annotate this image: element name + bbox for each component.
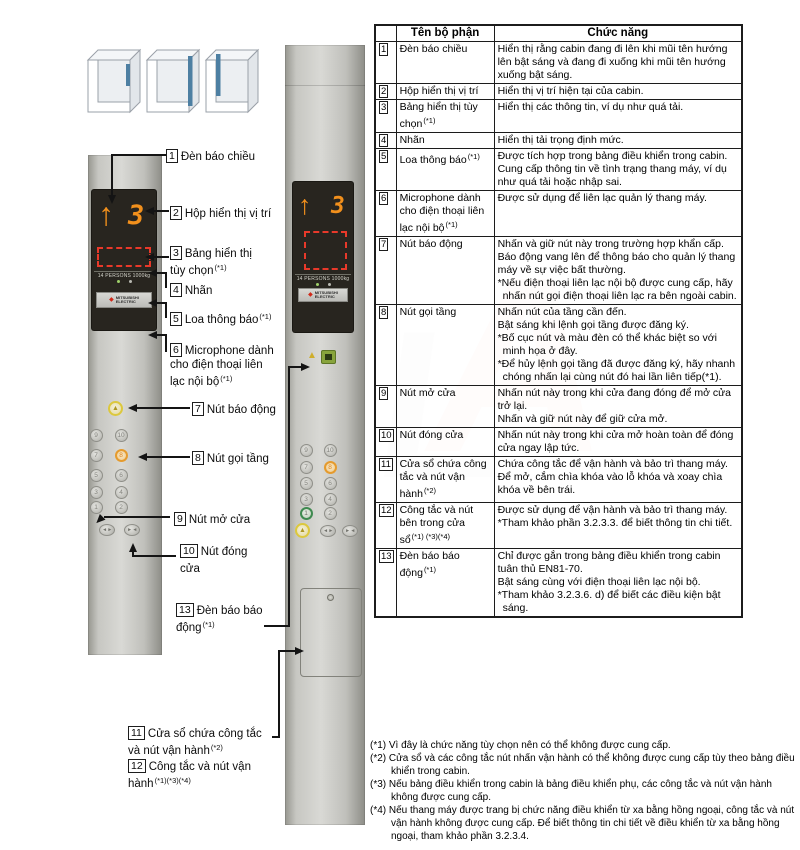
- table-row: 3Bảng hiển thị tùy chọn(*1)Hiển thị các …: [375, 100, 742, 133]
- floor-button-8: 8: [324, 461, 337, 474]
- function-paragraph: Báo động vang lên để thông báo cho quản …: [498, 251, 739, 277]
- arrowhead: [148, 331, 157, 339]
- capacity-label: 14 PERSONS 1000kg: [295, 274, 351, 286]
- callout-8: 8Nút gọi tầng: [192, 449, 302, 466]
- manual-page: A L: [0, 0, 800, 850]
- cell-number: 8: [375, 305, 396, 386]
- callout-line: [153, 210, 169, 212]
- callout-line: [111, 154, 113, 197]
- table-row: 1Đèn báo chiềuHiển thị rằng cabin đang đ…: [375, 42, 742, 84]
- cell-number: 6: [375, 191, 396, 237]
- door-open-button: ◄ ►: [99, 524, 115, 536]
- row-number: 9: [379, 387, 388, 400]
- arrowhead: [148, 269, 157, 277]
- floor-button-4: 4: [324, 493, 337, 506]
- table-row: 12Công tắc và nút bên trong cửa sổ(*1) (…: [375, 503, 742, 549]
- cell-function: Nhấn nút này trong khi cửa đang đóng để …: [494, 386, 742, 428]
- callout-10: 10Nút đóng cửa: [180, 544, 266, 576]
- floor-button-5: 5: [90, 469, 103, 482]
- cell-name: Công tắc và nút bên trong cửa sổ(*1) (*3…: [396, 503, 494, 549]
- car-operating-panel-right: ↑ 3 14 PERSONS 1000kg ◆ MITSUBISHIELECTR…: [285, 45, 365, 825]
- function-paragraph: Được sử dụng để vận hành và bảo trì than…: [498, 504, 739, 517]
- cell-number: 3: [375, 100, 396, 133]
- function-paragraph: Cung cấp thông tin về tình trạng thang m…: [498, 163, 739, 189]
- table-row: 10Nút đóng cửaNhấn nút này trong khi cửa…: [375, 428, 742, 457]
- floor-button-10: 10: [324, 444, 337, 457]
- alarm-indicator-lamp: ▲: [307, 351, 317, 361]
- footnotes: (*1) Vì đây là chức năng tùy chọn nên có…: [370, 739, 796, 843]
- table-row: 5Loa thông báo(*1)Được tích hợp trong bả…: [375, 149, 742, 191]
- header-function: Chức năng: [494, 25, 742, 42]
- function-paragraph: *Bố cục nút và màu đèn có thể khác biệt …: [498, 332, 739, 358]
- callout-line: [112, 154, 167, 156]
- function-paragraph: Nhấn và giữ nút này trong trường hợp khẩ…: [498, 238, 739, 251]
- cell-function: Nhấn nút này trong khi cửa mở hoàn toàn …: [494, 428, 742, 457]
- row-number: 12: [379, 504, 394, 517]
- function-paragraph: Nhấn nút này trong khi cửa đang đóng để …: [498, 387, 739, 413]
- callout-line: [136, 407, 190, 409]
- door-close-button: ► ◄: [124, 524, 140, 536]
- alarm-triangle-icon: ▲: [299, 527, 306, 534]
- function-paragraph: Nhấn nút này trong khi cửa mở hoàn toàn …: [498, 429, 739, 455]
- row-number: 10: [379, 429, 394, 442]
- cell-name: Nút gọi tầng: [396, 305, 494, 386]
- option-display: [304, 231, 347, 270]
- cell-name: Loa thông báo(*1): [396, 149, 494, 191]
- cell-function: Hiển thị tải trọng định mức.: [494, 133, 742, 149]
- table-row: 6Microphone dành cho điện thoại liên lạc…: [375, 191, 742, 237]
- table-row: 8Nút gọi tầngNhấn nút của tầng cần đến.B…: [375, 305, 742, 386]
- floor-button-6: 6: [324, 477, 337, 490]
- cell-function: Chỉ được gắn trong bảng điều khiển trong…: [494, 549, 742, 618]
- cell-function: Hiển thị vị trí hiện tại của cabin.: [494, 84, 742, 100]
- row-number: 11: [379, 458, 393, 471]
- function-paragraph: Được tích hợp trong bảng điều khiển tron…: [498, 150, 739, 163]
- alarm-triangle-icon: ▲: [112, 405, 119, 412]
- floor-button-7: 7: [90, 449, 103, 462]
- callout-6: 6Microphone dành cho điện thoại liên lạc…: [170, 343, 274, 389]
- cell-number: 7: [375, 237, 396, 305]
- callout-9: 9Nút mở cửa: [174, 510, 284, 527]
- cell-number: 10: [375, 428, 396, 457]
- function-paragraph: Hiển thị các thông tin, ví dụ như quá tả…: [498, 101, 739, 114]
- row-number: 1: [379, 43, 388, 56]
- cell-number: 11: [375, 457, 396, 503]
- table-row: 13Đèn báo báo động(*1)Chỉ được gắn trong…: [375, 549, 742, 618]
- intercom-indicator: [321, 350, 336, 364]
- function-paragraph: *Nếu điện thoại liên lạc nội bộ được cun…: [498, 277, 739, 303]
- floor-button-1: 1: [300, 507, 313, 520]
- footnote: (*4) Nếu thang máy được trang bị chức nă…: [370, 804, 796, 843]
- brand-logo: ◆ MITSUBISHIELECTRIC: [298, 288, 348, 302]
- floor-button-2: 2: [324, 507, 337, 520]
- function-paragraph: Để mở, cắm chìa khóa vào lỗ khóa và xoay…: [498, 471, 739, 497]
- callout-line: [165, 302, 167, 318]
- arrowhead: [128, 404, 137, 412]
- brand-diamond-icon: ◆: [308, 292, 313, 298]
- callout-7: 7Nút báo động: [192, 400, 302, 417]
- cell-number: 9: [375, 386, 396, 428]
- floor-button-4: 4: [115, 486, 128, 499]
- table-row: 7Nút báo độngNhấn và giữ nút này trong t…: [375, 237, 742, 305]
- callout-11: 11Cửa sổ chứa công tắc và nút vận hành(*…: [128, 726, 274, 758]
- callout-line: [165, 334, 167, 352]
- table-header-row: Tên bộ phận Chức năng: [375, 25, 742, 42]
- footnote: (*1) Vì đây là chức năng tùy chọn nên có…: [370, 739, 796, 752]
- cabin-illustrations: [86, 46, 262, 142]
- callout-5: 5Loa thông báo(*1): [170, 310, 290, 327]
- panel-seam: [285, 85, 365, 86]
- cell-function: Nhấn nút của tầng cần đến.Bật sáng khi l…: [494, 305, 742, 386]
- cell-function: Chứa công tắc để vận hành và bảo trì tha…: [494, 457, 742, 503]
- cell-name: Nút đóng cửa: [396, 428, 494, 457]
- row-number: 3: [379, 101, 388, 114]
- floor-button-3: 3: [300, 493, 313, 506]
- footnote: (*2) Cửa sổ và các công tắc nút nhấn vận…: [370, 752, 796, 778]
- alarm-button: ▲: [295, 523, 310, 538]
- door-close-icon: ► ◄: [345, 528, 355, 534]
- callout-3: 3Bảng hiển thị tùy chọn(*1): [170, 246, 266, 278]
- function-paragraph: Hiển thị rằng cabin đang đi lên khi mũi …: [498, 43, 739, 82]
- callout-line: [278, 650, 296, 652]
- callout-line: [288, 366, 302, 368]
- access-window: [300, 588, 362, 677]
- direction-arrow-icon: ↑: [298, 192, 312, 219]
- function-paragraph: Nhấn và giữ nút này để giữ cửa mở.: [498, 413, 739, 426]
- row-number: 4: [379, 134, 388, 147]
- function-paragraph: *Tham khảo 3.2.3.6. d) để biết các điều …: [498, 589, 739, 615]
- row-number: 7: [379, 238, 388, 251]
- arrowhead: [148, 299, 157, 307]
- brand-logo: ◆ MITSUBISHIELECTRIC: [96, 292, 152, 308]
- arrowhead: [138, 453, 147, 461]
- arrowhead: [108, 195, 116, 204]
- arrowhead: [145, 253, 154, 261]
- car-operating-panel-left: ↑ 3 14 PERSONS 1000kg ◆ MITSUBISHIELECTR…: [88, 155, 162, 655]
- keyhole: [327, 594, 334, 601]
- cell-name: Cửa sổ chứa công tắc và nút vận hành(*2): [396, 457, 494, 503]
- function-paragraph: Hiển thị tải trọng định mức.: [498, 134, 739, 147]
- cell-number: 5: [375, 149, 396, 191]
- callout-line: [146, 456, 190, 458]
- function-paragraph: Hiển thị vị trí hiện tại của cabin.: [498, 85, 739, 98]
- row-number: 13: [379, 550, 394, 563]
- arrowhead: [301, 363, 310, 371]
- row-number: 2: [379, 85, 388, 98]
- function-paragraph: Được sử dụng để liên lạc quản lý thang m…: [498, 192, 739, 205]
- cell-name: Microphone dành cho điện thoại liên lạc …: [396, 191, 494, 237]
- cell-name: Nút mở cửa: [396, 386, 494, 428]
- function-paragraph: Bật sáng cùng với điện thoại liên lạc nộ…: [498, 576, 739, 589]
- row-number: 8: [379, 306, 388, 319]
- floor-button-2: 2: [115, 501, 128, 514]
- floor-indicator: 3: [128, 202, 144, 229]
- floor-button-8: 8: [115, 449, 128, 462]
- cell-number: 2: [375, 84, 396, 100]
- floor-button-1: 1: [90, 501, 103, 514]
- door-close-button: ► ◄: [342, 525, 358, 537]
- cell-number: 4: [375, 133, 396, 149]
- arrowhead: [295, 647, 304, 655]
- header-name: Tên bộ phận: [396, 25, 494, 42]
- header-number: [375, 25, 396, 42]
- floor-button-5: 5: [300, 477, 313, 490]
- floor-button-10: 10: [115, 429, 128, 442]
- parts-table: Tên bộ phận Chức năng 1Đèn báo chiềuHiển…: [374, 24, 743, 618]
- floor-indicator: 3: [331, 195, 345, 218]
- cell-name: Hộp hiển thị vị trí: [396, 84, 494, 100]
- callout-12: 12Công tắc và nút vận hành(*1)(*3)(*4): [128, 759, 274, 791]
- callout-1: 1Đèn báo chiều: [166, 147, 276, 164]
- capacity-label: 14 PERSONS 1000kg: [94, 271, 154, 283]
- cell-function: Được sử dụng để liên lạc quản lý thang m…: [494, 191, 742, 237]
- cell-function: Nhấn và giữ nút này trong trường hợp khẩ…: [494, 237, 742, 305]
- cell-number: 12: [375, 503, 396, 549]
- callout-4: 4Nhãn: [170, 281, 260, 298]
- table-row: 11Cửa sổ chứa công tắc và nút vận hành(*…: [375, 457, 742, 503]
- door-open-button: ◄ ►: [320, 525, 336, 537]
- door-open-icon: ◄ ►: [102, 527, 112, 533]
- option-display: [97, 247, 151, 267]
- brand-diamond-icon: ◆: [109, 297, 114, 303]
- function-paragraph: Chứa công tắc để vận hành và bảo trì tha…: [498, 458, 739, 471]
- cell-name: Nút báo động: [396, 237, 494, 305]
- arrowhead: [145, 207, 154, 215]
- function-paragraph: Nhấn nút của tầng cần đến.: [498, 306, 739, 319]
- cell-function: Hiển thị rằng cabin đang đi lên khi mũi …: [494, 42, 742, 84]
- cell-function: Hiển thị các thông tin, ví dụ như quá tả…: [494, 100, 742, 133]
- display-unit: ↑ 3 14 PERSONS 1000kg ◆ MITSUBISHIELECTR…: [293, 182, 353, 332]
- table-row: 4NhãnHiển thị tải trọng định mức.: [375, 133, 742, 149]
- function-paragraph: Chỉ được gắn trong bảng điều khiển trong…: [498, 550, 739, 576]
- callout-13: 13Đèn báo báo động(*1): [176, 603, 268, 635]
- floor-button-3: 3: [90, 486, 103, 499]
- floor-button-9: 9: [90, 429, 103, 442]
- callout-line: [132, 555, 176, 557]
- function-paragraph: *Tham khảo phần 3.2.3.3. để biết thông t…: [498, 517, 739, 530]
- callout-line: [165, 272, 167, 288]
- door-open-icon: ◄ ►: [323, 528, 333, 534]
- table-row: 9Nút mở cửaNhấn nút này trong khi cửa đa…: [375, 386, 742, 428]
- cell-name: Đèn báo chiều: [396, 42, 494, 84]
- callout-line: [278, 651, 280, 738]
- footnote: (*3) Nếu bảng điều khiển trong cabin là …: [370, 778, 796, 804]
- cell-number: 13: [375, 549, 396, 618]
- function-paragraph: Bật sáng khi lệnh gọi tầng được đăng ký.: [498, 319, 739, 332]
- cell-name: Nhãn: [396, 133, 494, 149]
- cell-name: Bảng hiển thị tùy chọn(*1): [396, 100, 494, 133]
- table-row: 2Hộp hiển thị vị tríHiển thị vị trí hiện…: [375, 84, 742, 100]
- callout-2: 2Hộp hiển thị vị trí: [170, 204, 272, 221]
- callout-line: [153, 256, 169, 258]
- floor-button-6: 6: [115, 469, 128, 482]
- cell-name: Đèn báo báo động(*1): [396, 549, 494, 618]
- door-close-icon: ► ◄: [127, 527, 137, 533]
- arrowhead: [129, 543, 137, 552]
- cell-function: Được sử dụng để vận hành và bảo trì than…: [494, 503, 742, 549]
- callout-line: [104, 516, 170, 518]
- function-paragraph: *Để hủy lệnh gọi tầng đã được đăng ký, h…: [498, 358, 739, 384]
- alarm-button: ▲: [108, 401, 123, 416]
- row-number: 6: [379, 192, 388, 205]
- row-number: 5: [379, 150, 388, 163]
- cell-function: Được tích hợp trong bảng điều khiển tron…: [494, 149, 742, 191]
- cell-number: 1: [375, 42, 396, 84]
